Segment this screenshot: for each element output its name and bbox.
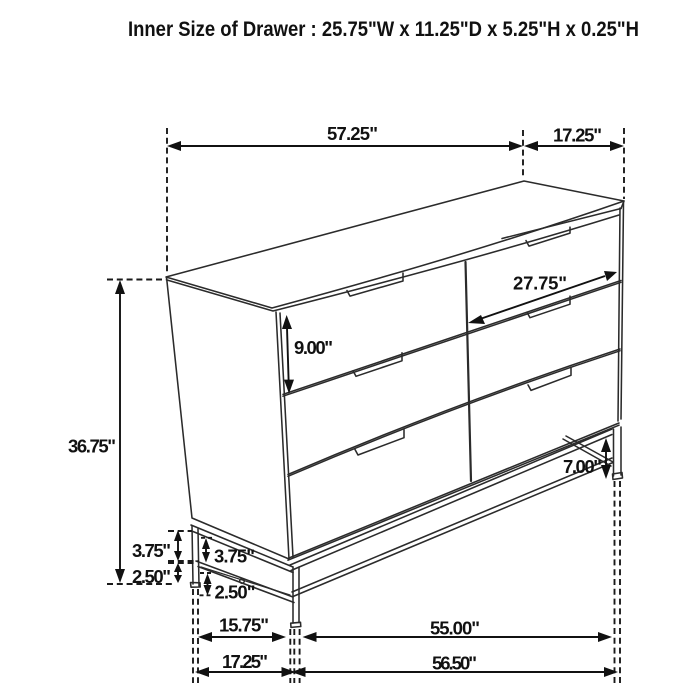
svg-text:17.25": 17.25" — [222, 651, 268, 672]
svg-text:17.25": 17.25" — [553, 125, 602, 146]
svg-text:Inner Size of Drawer : 25.75"W: Inner Size of Drawer : 25.75"W x 11.25"D… — [128, 18, 639, 41]
svg-text:3.75": 3.75" — [214, 546, 255, 567]
svg-text:7.00": 7.00" — [563, 456, 602, 477]
svg-text:2.50": 2.50" — [215, 582, 256, 603]
svg-text:56.50": 56.50" — [432, 653, 477, 674]
svg-text:9.00": 9.00" — [294, 337, 333, 358]
svg-text:36.75": 36.75" — [68, 436, 116, 457]
svg-text:57.25": 57.25" — [327, 123, 378, 144]
svg-text:27.75": 27.75" — [513, 273, 567, 294]
svg-text:55.00": 55.00" — [430, 618, 480, 639]
svg-text:2.50": 2.50" — [132, 566, 171, 587]
svg-text:3.75": 3.75" — [132, 540, 171, 561]
svg-text:15.75": 15.75" — [219, 615, 269, 636]
